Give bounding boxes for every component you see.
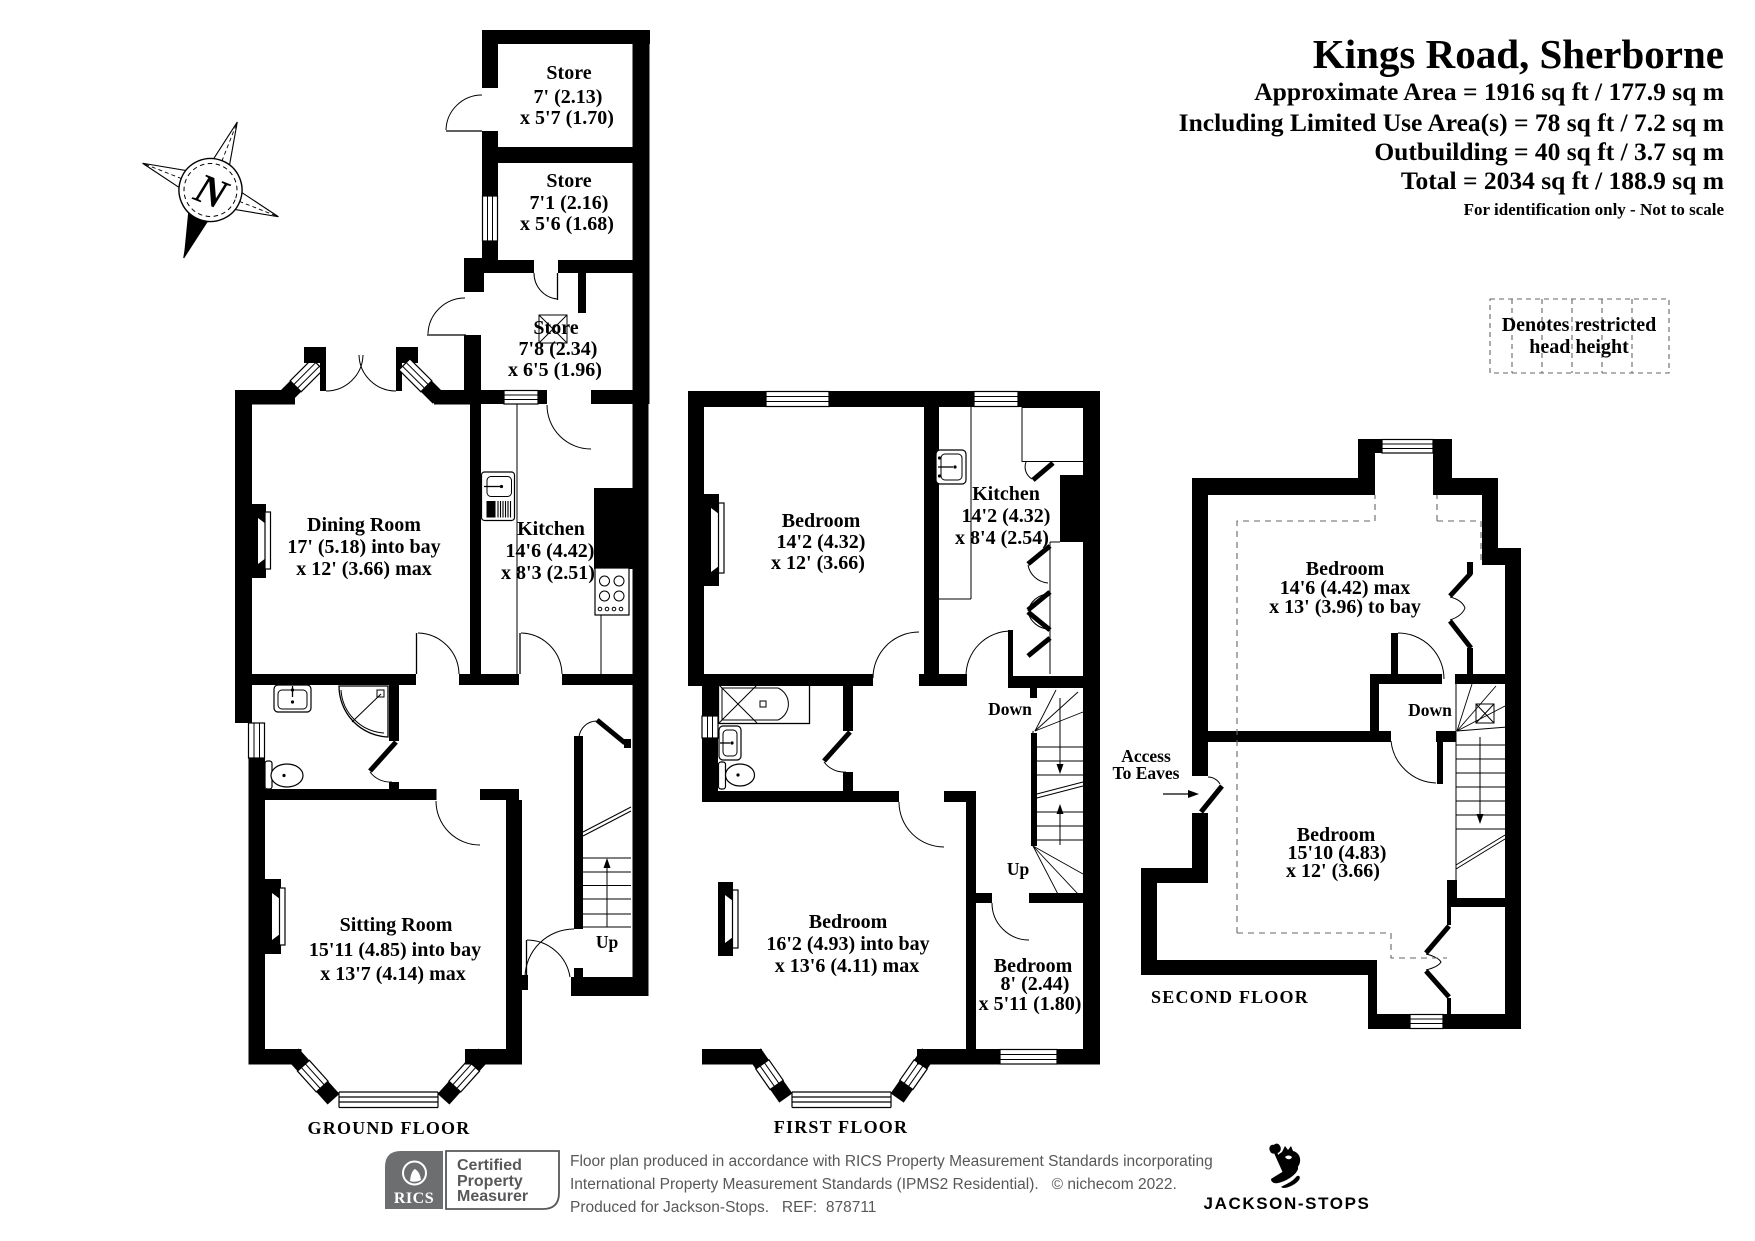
- svg-text:For identification only - Not: For identification only - Not to scale: [1464, 200, 1725, 219]
- svg-text:JACKSON-STOPS: JACKSON-STOPS: [1204, 1194, 1371, 1213]
- svg-text:x 13'7 (4.14) max: x 13'7 (4.14) max: [320, 963, 466, 985]
- svg-text:head height: head height: [1529, 336, 1629, 358]
- svg-text:Floor plan produced in accorda: Floor plan produced in accordance with R…: [570, 1153, 1213, 1170]
- svg-text:Certified: Certified: [457, 1157, 522, 1174]
- svg-text:x 12' (3.66): x 12' (3.66): [771, 552, 865, 574]
- svg-text:To Eaves: To Eaves: [1113, 763, 1180, 783]
- svg-text:Denotes restricted: Denotes restricted: [1502, 314, 1657, 336]
- svg-text:Down: Down: [988, 699, 1032, 719]
- svg-text:7'8 (2.34): 7'8 (2.34): [519, 338, 598, 360]
- svg-text:Including Limited Use Area(s): Including Limited Use Area(s) = 78 sq ft…: [1179, 108, 1724, 137]
- svg-text:SECOND FLOOR: SECOND FLOOR: [1151, 987, 1309, 1007]
- svg-text:14'2 (4.32): 14'2 (4.32): [962, 505, 1051, 527]
- svg-text:Up: Up: [596, 932, 619, 952]
- svg-text:Store: Store: [546, 170, 591, 192]
- svg-text:x 12' (3.66) max: x 12' (3.66) max: [296, 558, 432, 580]
- svg-text:Kitchen: Kitchen: [517, 518, 585, 540]
- svg-text:GROUND FLOOR: GROUND FLOOR: [308, 1118, 471, 1138]
- svg-text:7'1 (2.16): 7'1 (2.16): [530, 192, 609, 214]
- svg-text:Store: Store: [546, 62, 591, 84]
- svg-text:FIRST FLOOR: FIRST FLOOR: [774, 1117, 908, 1137]
- svg-text:x 6'5 (1.96): x 6'5 (1.96): [508, 359, 602, 381]
- svg-text:Measurer: Measurer: [457, 1188, 528, 1205]
- svg-text:16'2 (4.93) into bay: 16'2 (4.93) into bay: [766, 933, 929, 955]
- svg-text:Kitchen: Kitchen: [972, 483, 1040, 505]
- svg-text:x 8'3 (2.51): x 8'3 (2.51): [501, 562, 595, 584]
- svg-text:x 5'7 (1.70): x 5'7 (1.70): [520, 107, 614, 129]
- svg-text:Up: Up: [1007, 859, 1030, 879]
- svg-text:Bedroom: Bedroom: [782, 510, 861, 532]
- svg-text:x 5'6 (1.68): x 5'6 (1.68): [520, 213, 614, 235]
- svg-text:x 13'6 (4.11) max: x 13'6 (4.11) max: [775, 955, 919, 977]
- svg-text:8' (2.44): 8' (2.44): [1001, 973, 1070, 995]
- svg-text:15'11 (4.85) into bay: 15'11 (4.85) into bay: [309, 939, 481, 961]
- svg-text:Approximate Area = 1916 sq ft: Approximate Area = 1916 sq ft / 177.9 sq…: [1254, 77, 1724, 106]
- svg-text:Store: Store: [533, 317, 578, 339]
- svg-text:Kings Road, Sherborne: Kings Road, Sherborne: [1313, 31, 1724, 77]
- svg-text:Sitting Room: Sitting Room: [340, 914, 453, 936]
- svg-text:x 12' (3.66): x 12' (3.66): [1286, 860, 1380, 882]
- svg-text:x 5'11 (1.80): x 5'11 (1.80): [979, 993, 1082, 1015]
- svg-text:x 8'4 (2.54): x 8'4 (2.54): [955, 527, 1049, 549]
- svg-text:Produced for Jackson-Stops.: Produced for Jackson-Stops. REF: 878711: [570, 1199, 876, 1216]
- svg-text:x 13' (3.96) to bay: x 13' (3.96) to bay: [1269, 596, 1421, 618]
- svg-text:17' (5.18) into bay: 17' (5.18) into bay: [287, 536, 440, 558]
- svg-text:Bedroom: Bedroom: [809, 911, 888, 933]
- svg-text:Total = 2034 sq ft / 188.9 sq: Total = 2034 sq ft / 188.9 sq m: [1401, 166, 1724, 195]
- svg-text:Down: Down: [1408, 700, 1452, 720]
- svg-text:Outbuilding = 40 sq ft / 3.7 s: Outbuilding = 40 sq ft / 3.7 sq m: [1374, 137, 1724, 166]
- svg-text:7' (2.13): 7' (2.13): [534, 86, 603, 108]
- svg-text:Dining Room: Dining Room: [307, 514, 421, 536]
- svg-text:International Property Measure: International Property Measurement Stand…: [570, 1176, 1177, 1193]
- svg-text:RICS: RICS: [394, 1190, 434, 1207]
- svg-text:14'6 (4.42): 14'6 (4.42): [506, 540, 595, 562]
- svg-text:14'2 (4.32): 14'2 (4.32): [777, 531, 866, 553]
